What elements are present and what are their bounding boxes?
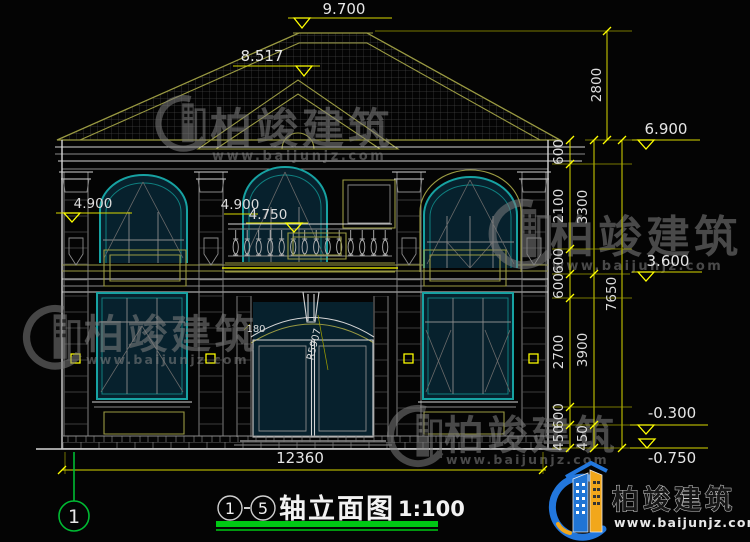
- watermark: 柏竣建筑 www.baijunjz.com: [27, 309, 258, 367]
- dim-inner-6: 450: [551, 425, 567, 451]
- dim-total-width: 12360: [276, 449, 324, 467]
- level-left-floor2: 4.900: [74, 196, 113, 212]
- drawing-scale: 1:100: [398, 497, 465, 521]
- dim-outer-1: 3900: [575, 333, 591, 367]
- dim-inner-5: 600: [551, 403, 567, 429]
- brand-url: www.baijunjz.com: [614, 515, 750, 530]
- pilaster-coursing: [397, 196, 421, 436]
- dim-roof-rise: 2800: [589, 68, 605, 102]
- brand-logo: 柏竣建筑 www.baijunjz.com: [552, 463, 750, 537]
- dim-inner-4: 2700: [551, 335, 567, 369]
- level-ridge: 9.700: [323, 0, 366, 18]
- dim-outer-2: 450: [575, 425, 591, 451]
- watermark-url: www.baijunjz.com: [86, 352, 249, 367]
- level-grade: -0.300: [648, 404, 696, 422]
- axis-from: 1: [225, 499, 235, 518]
- dim-inner-0: 600: [551, 139, 567, 165]
- watermark-name: 柏竣建筑: [210, 104, 394, 153]
- window-2f-small: [343, 180, 395, 228]
- level-footing: -0.750: [648, 449, 696, 467]
- level-roof-mid: 8.517: [241, 47, 284, 65]
- elevation-drawing: 180 R5907 柏竣建筑 www.baijunjz.com 柏竣建筑 www…: [0, 0, 750, 542]
- dim-inner-3: 600: [551, 273, 567, 299]
- watermark-url: www.baijunjz.com: [212, 149, 386, 164]
- dim-right-total: 7650: [604, 277, 620, 311]
- title-block: 1 5 轴立面图 1:100: [216, 493, 465, 530]
- dim-outer-0: 3300: [575, 190, 591, 224]
- balustrade: [230, 230, 390, 256]
- level-eave: 6.900: [645, 120, 688, 138]
- title-underline: [216, 521, 438, 527]
- window-glass: [97, 167, 517, 437]
- axis-bubble-label: 1: [68, 506, 80, 528]
- dim-inner-2: 600: [551, 248, 567, 274]
- axis-to: 5: [258, 499, 268, 518]
- level-floor2: 3.600: [647, 252, 690, 270]
- watermark: 柏竣建筑 www.baijunjz.com: [493, 203, 742, 274]
- drawing-title: 轴立面图: [279, 493, 395, 525]
- level-balcony: 4.750: [249, 207, 288, 223]
- cad-canvas: 180 R5907 柏竣建筑 www.baijunjz.com 柏竣建筑 www…: [0, 0, 750, 542]
- dim-inner-1: 2100: [551, 189, 567, 223]
- axis-bubble: 1: [59, 452, 89, 531]
- brand-building-icon: [552, 463, 607, 537]
- brand-name: 柏竣建筑: [612, 484, 736, 516]
